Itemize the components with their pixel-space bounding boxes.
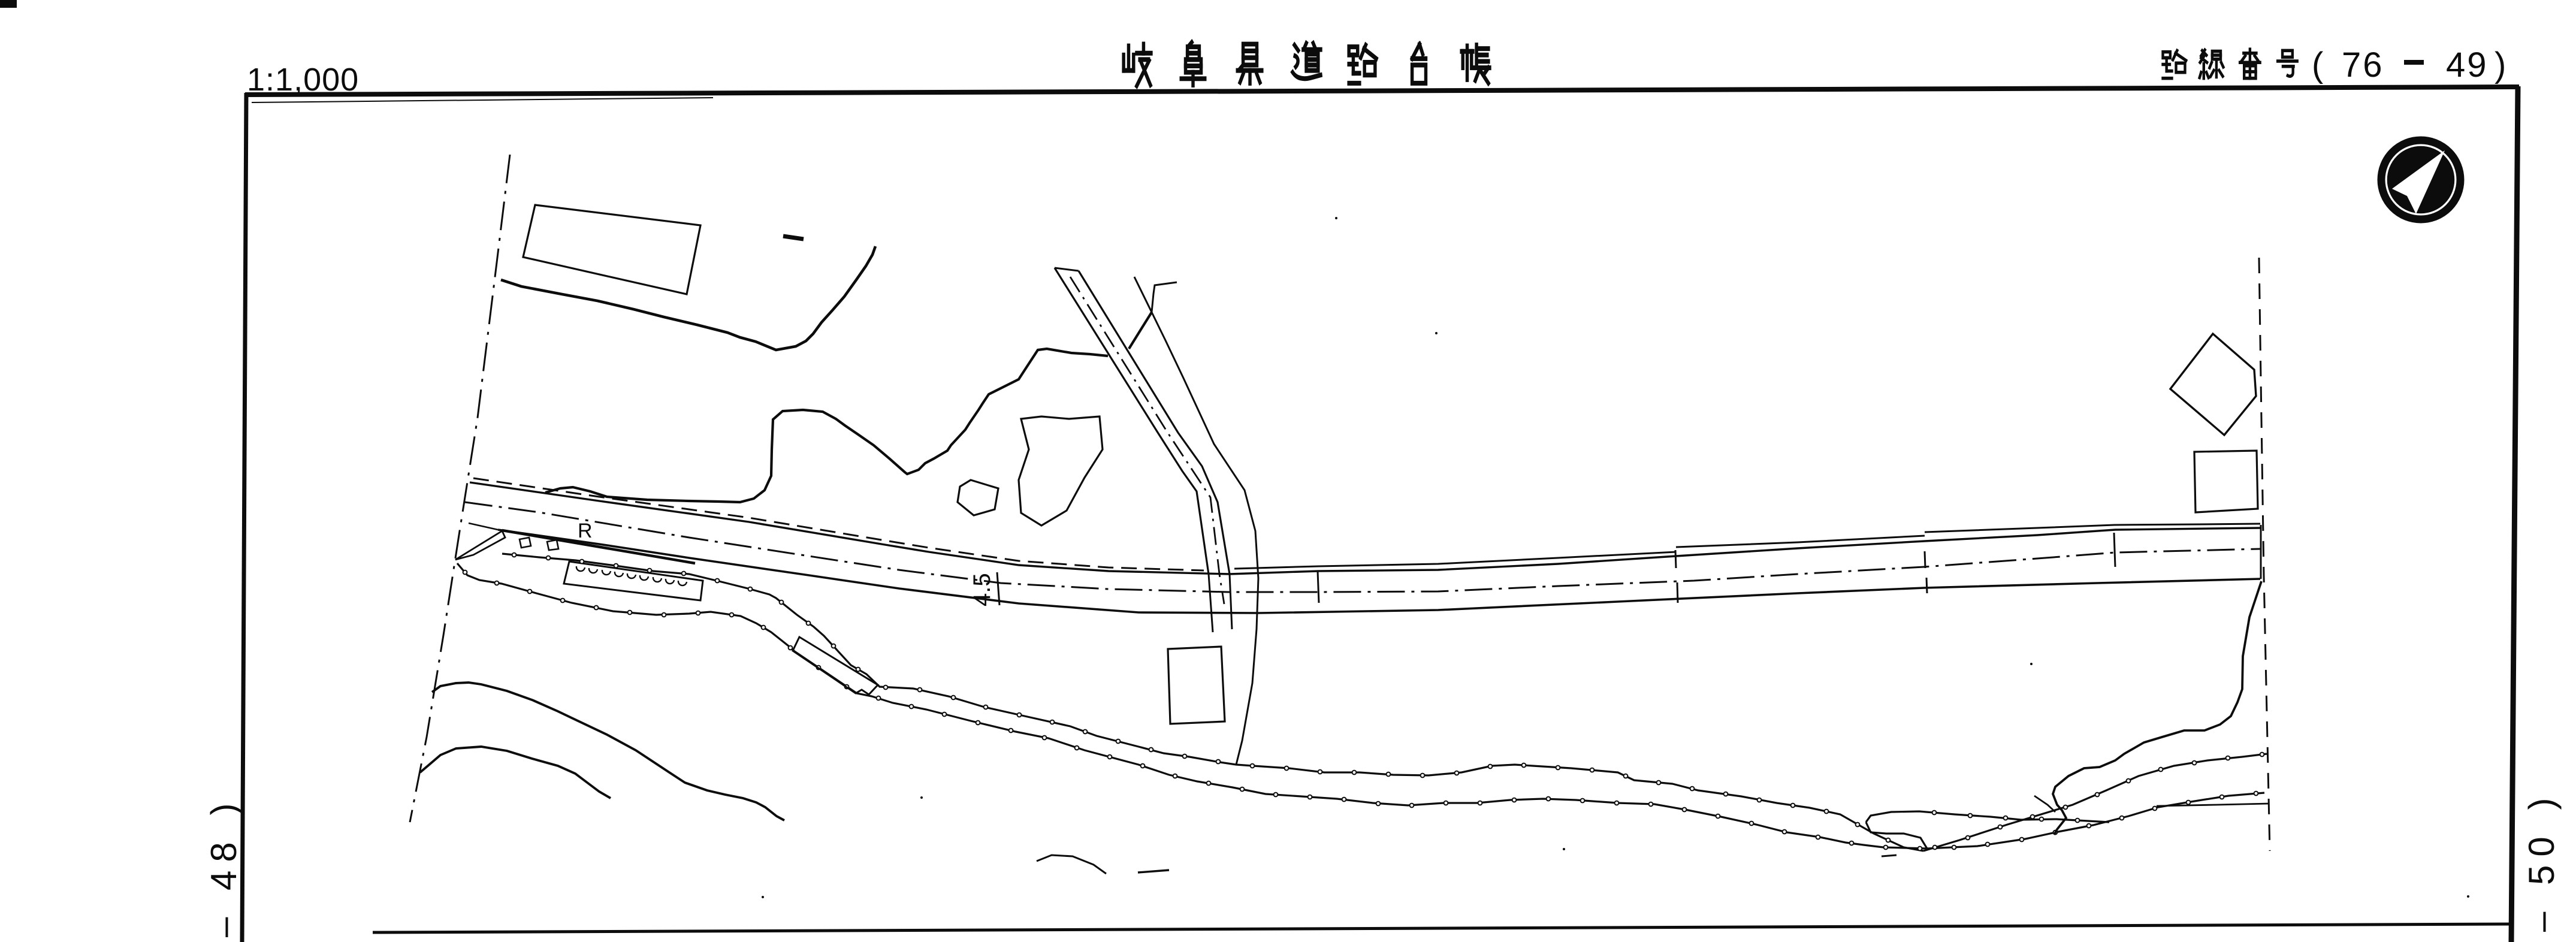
svg-text:– 50 ): – 50 ) xyxy=(2521,790,2562,932)
svg-text:(: ( xyxy=(2312,46,2323,84)
svg-text:– 48 ): – 48 ) xyxy=(204,795,244,937)
svg-text:49: 49 xyxy=(2446,46,2489,84)
svg-text:R: R xyxy=(578,520,593,542)
svg-text:): ) xyxy=(2495,46,2506,84)
svg-text:4.5: 4.5 xyxy=(969,573,995,606)
svg-text:76: 76 xyxy=(2342,46,2384,84)
